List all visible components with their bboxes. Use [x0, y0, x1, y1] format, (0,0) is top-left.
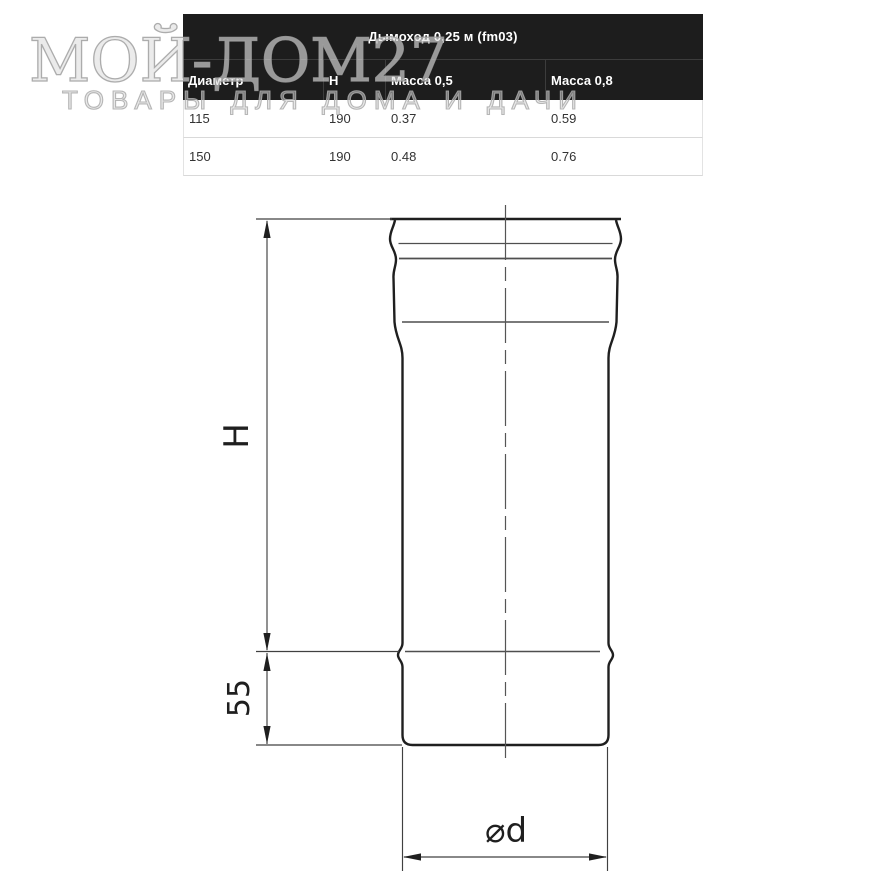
table-row: 115 190 0.37 0.59 — [183, 100, 703, 138]
cell-mass05: 0.48 — [386, 138, 546, 175]
spec-table: Дымоход 0,25 м (fm03) Диаметр Н Масса 0,… — [183, 14, 703, 176]
dimension-55: 55 — [222, 653, 271, 744]
cell-diameter: 150 — [184, 138, 324, 175]
arrow-up-icon — [263, 220, 270, 238]
arrow-up-icon — [263, 653, 270, 671]
pipe-outline-right — [506, 220, 622, 745]
table-row: 150 190 0.48 0.76 — [183, 138, 703, 176]
cell-h: 190 — [324, 138, 386, 175]
cell-h: 190 — [324, 100, 386, 137]
arrow-down-icon — [263, 633, 270, 651]
cell-mass05: 0.37 — [386, 100, 546, 137]
cell-diameter: 115 — [184, 100, 324, 137]
column-header-diameter: Диаметр — [183, 60, 323, 100]
arrow-left-icon — [403, 853, 421, 860]
spec-table-title: Дымоход 0,25 м (fm03) — [183, 14, 703, 59]
extension-lines — [256, 219, 608, 871]
column-header-h: Н — [323, 60, 385, 100]
dimension-label-diameter: ⌀d — [485, 811, 527, 851]
arrow-down-icon — [263, 726, 270, 744]
dimension-label-h: H — [217, 423, 257, 449]
column-header-mass08: Масса 0,8 — [545, 60, 703, 100]
arrow-right-icon — [589, 853, 607, 860]
cell-mass08: 0.76 — [546, 138, 702, 175]
column-header-mass05: Масса 0,5 — [385, 60, 545, 100]
cell-mass08: 0.59 — [546, 100, 702, 137]
spec-table-header-row: Диаметр Н Масса 0,5 Масса 0,8 — [183, 59, 703, 100]
dimension-h: H — [217, 220, 271, 651]
dimension-diameter: ⌀d — [403, 811, 607, 861]
dimension-label-55: 55 — [222, 679, 257, 717]
